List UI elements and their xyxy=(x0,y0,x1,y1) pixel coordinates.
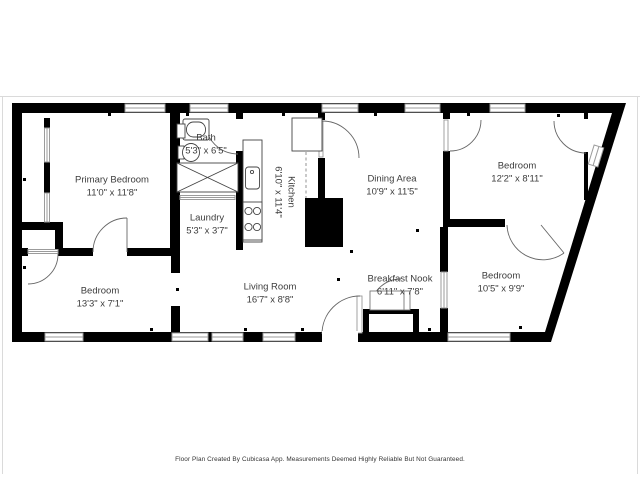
label-dining-area: Dining Area10'9" x 11'5" xyxy=(366,174,417,199)
stove xyxy=(243,202,262,240)
door-primary-bedroom xyxy=(93,218,127,252)
window-bottom-4 xyxy=(263,333,295,341)
label-kitchen: Kitchen6'10" x 11'4" xyxy=(272,166,297,217)
disclaimer-text: Floor Plan Created By Cubicasa App. Meas… xyxy=(0,456,640,463)
door-dining-bedroom xyxy=(444,120,481,151)
window-top-3 xyxy=(322,104,358,112)
opening-bedroom-living xyxy=(169,273,181,306)
label-primary-bedroom: Primary Bedroom11'0" x 11'8" xyxy=(75,175,149,200)
window-top-5 xyxy=(490,104,525,112)
floor-plan-drawing xyxy=(0,0,640,480)
kitchen-sink xyxy=(246,167,260,189)
refrigerator xyxy=(292,118,322,151)
bathroom-sink xyxy=(177,124,185,138)
label-living-room: Living Room16'7" x 8'8" xyxy=(244,282,297,307)
fireplace xyxy=(305,198,343,247)
window-nook-interior xyxy=(441,272,447,308)
label-bedroom-bottom-right: Bedroom10'5" x 9'9" xyxy=(478,271,525,296)
door-bedroom-tr-closet xyxy=(554,121,586,153)
window-bottom-3 xyxy=(212,333,243,341)
window-bottom-5 xyxy=(448,333,510,341)
label-bedroom-top-right: Bedroom12'2" x 8'11" xyxy=(491,161,542,186)
opening-entry xyxy=(322,331,358,343)
window-top-2 xyxy=(190,104,228,112)
window-bottom-2 xyxy=(172,333,208,341)
door-entry xyxy=(322,296,362,334)
window-top-1 xyxy=(125,104,165,112)
floor-plan-image: Primary Bedroom11'0" x 11'8" Bath5'3" x … xyxy=(0,0,640,480)
window-top-4 xyxy=(405,104,440,112)
door-bedroom-closet xyxy=(28,254,58,284)
washer-dryer-closet xyxy=(177,163,238,192)
door-kitchen-dining xyxy=(319,121,359,158)
window-bottom-1 xyxy=(45,333,83,341)
label-laundry: Laundry5'3" x 3'7" xyxy=(186,213,228,238)
label-breakfast-nook: Breakfast Nook6'11" x 7'8" xyxy=(368,274,433,299)
label-bedroom-bottom-left: Bedroom13'3" x 7'1" xyxy=(77,286,124,311)
door-bedroom-br xyxy=(507,225,564,260)
label-bath: Bath5'3" x 6'5" xyxy=(185,133,227,158)
